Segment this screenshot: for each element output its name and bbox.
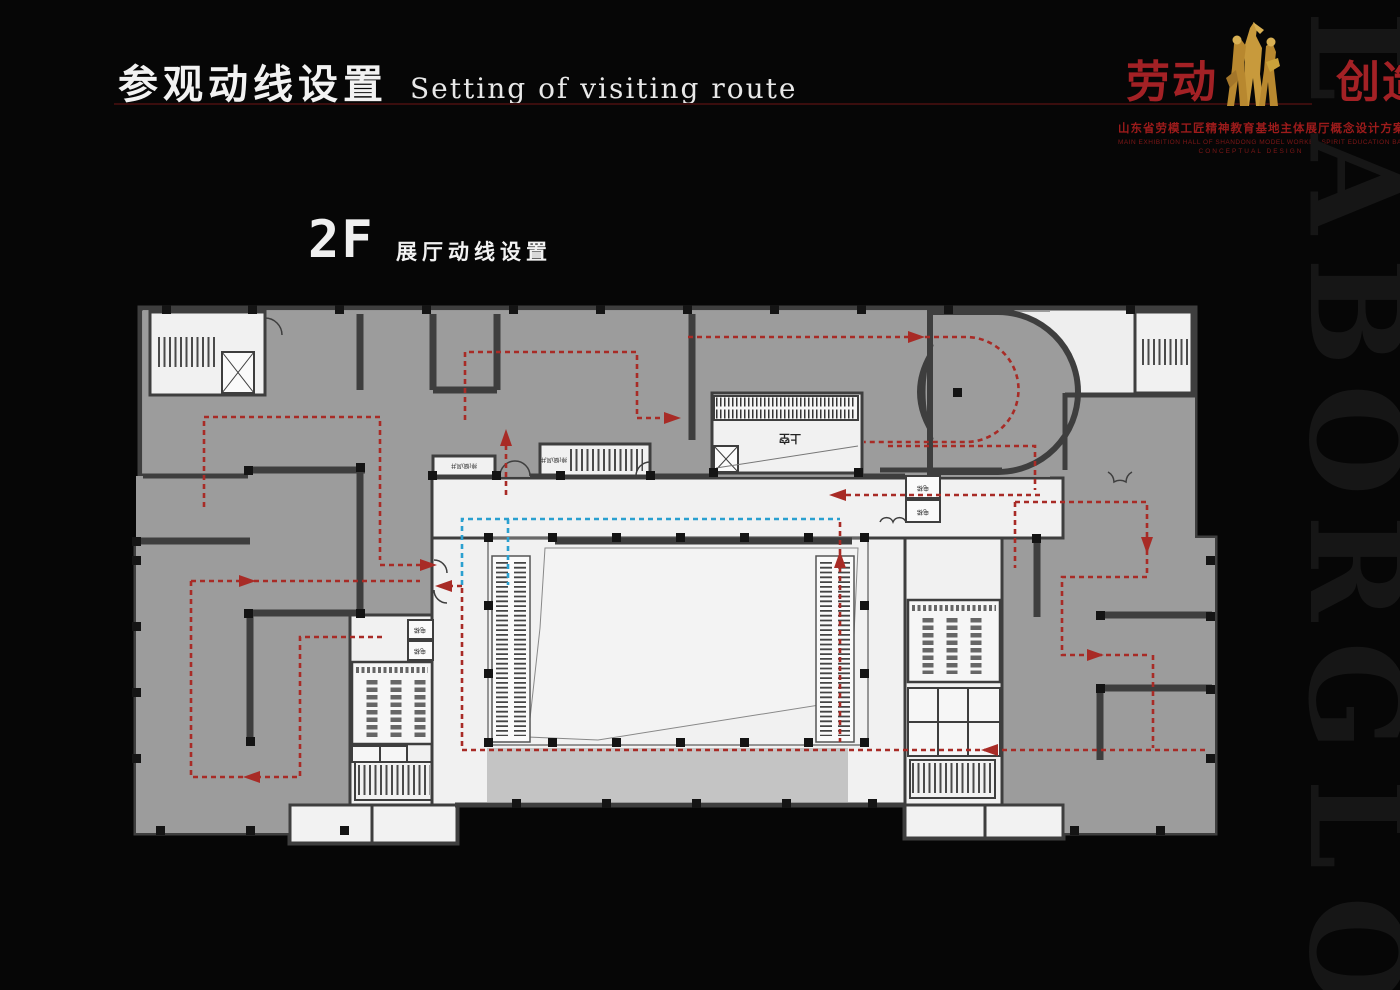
- brand-word-left: 劳动: [1126, 46, 1218, 110]
- slide: 参观动线设置Setting of visiting route 劳动 创造 山东…: [0, 0, 1400, 990]
- page-title: 参观动线设置Setting of visiting route: [118, 52, 797, 110]
- floor-label: 2F 展厅动线设置: [308, 210, 375, 270]
- page-title-en: Setting of visiting route: [410, 72, 797, 105]
- elevator-label: 电梯: [414, 626, 426, 634]
- south-terrace: [487, 748, 848, 802]
- watermark-letter: G: [1291, 641, 1400, 750]
- floor-subtitle: 展厅动线设置: [396, 236, 552, 266]
- watermark-letter: R: [1291, 515, 1400, 621]
- watermark-letter: B: [1291, 258, 1400, 366]
- floor-plan: 上空 电梯 电梯 电梯 电梯 排(烟)风井 排(烟)风井: [130, 300, 1230, 850]
- watermark-letter: O: [1291, 896, 1400, 990]
- smoke-shaft-label: 排(烟)风井: [450, 462, 477, 470]
- worker-statue-icon: [1220, 18, 1284, 114]
- page-title-cn: 参观动线设置: [118, 61, 388, 108]
- watermark-letter: L: [1291, 11, 1400, 101]
- watermark-letter: L: [1291, 779, 1400, 869]
- watermark-labor-glory: L A B O R G L O R Y: [1280, 0, 1400, 990]
- floor-number: 2F: [308, 210, 375, 270]
- void-label: 上空: [779, 432, 801, 446]
- elevator-label: 电梯: [414, 647, 426, 655]
- elevator-label: 电梯: [917, 508, 929, 516]
- smoke-shaft-label: 排(烟)风井: [540, 456, 567, 464]
- entrance-canopies: [290, 805, 1063, 843]
- watermark-letter: A: [1291, 134, 1400, 233]
- elevator-label: 电梯: [917, 484, 929, 492]
- watermark-letter: O: [1291, 384, 1400, 496]
